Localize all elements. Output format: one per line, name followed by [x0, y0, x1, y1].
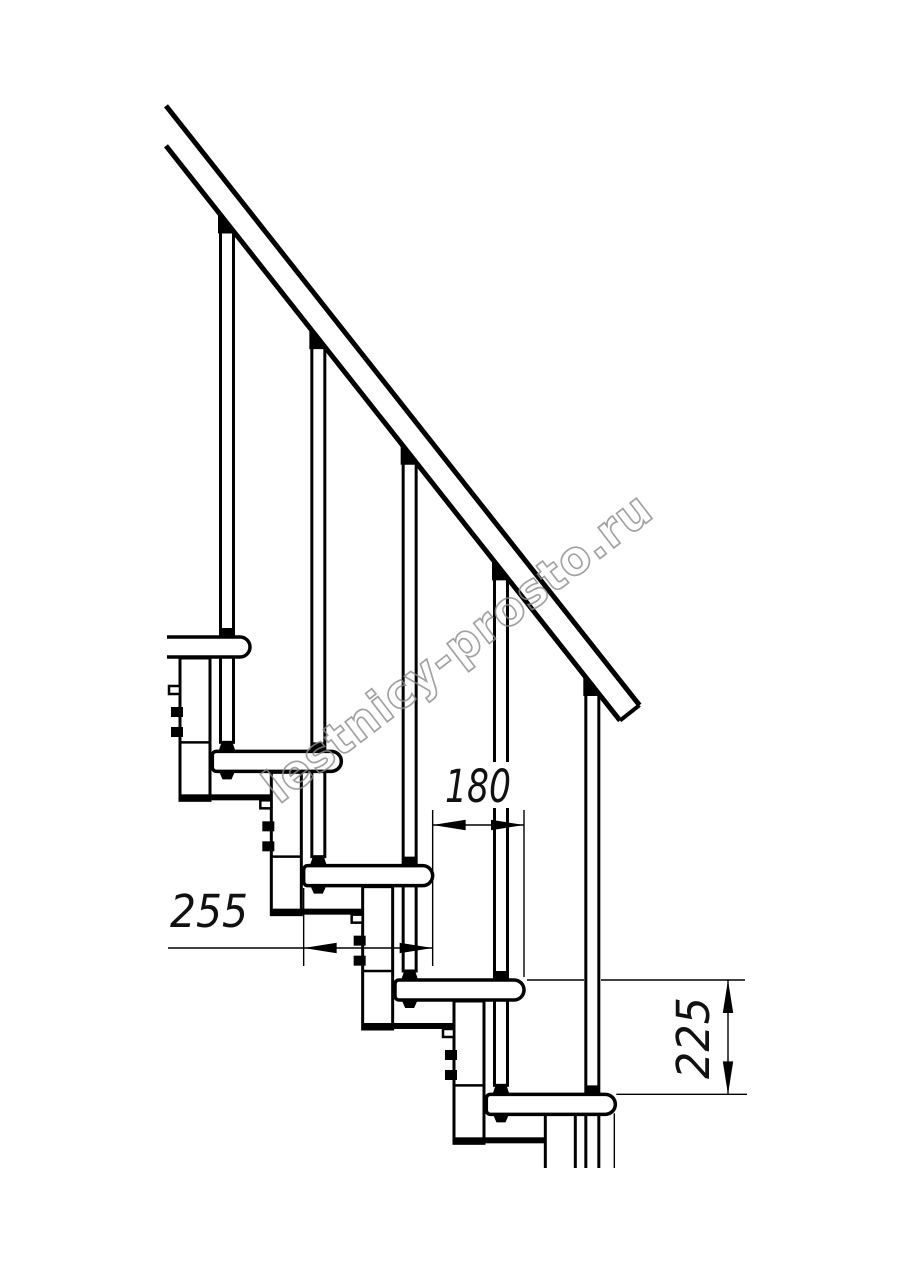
staircase-technical-drawing: 180 255 225 lestnicy-prosto.ru: [0, 0, 914, 1280]
baluster: [586, 689, 599, 1094]
bolt: [262, 821, 274, 831]
baluster: [312, 343, 325, 752]
tread: [486, 1094, 615, 1114]
bolt: [354, 936, 366, 946]
module-flange: [271, 909, 363, 915]
baluster: [221, 227, 234, 637]
arrowhead: [304, 943, 337, 953]
support-post: [403, 885, 416, 971]
arrowhead: [433, 820, 466, 830]
support-column: [180, 658, 210, 800]
drawing-canvas: 180 255 225 lestnicy-prosto.ru: [0, 0, 914, 1280]
tread: [167, 637, 250, 657]
support-post: [494, 999, 507, 1085]
tread: [395, 980, 524, 1000]
bolt: [445, 1070, 457, 1080]
dimension-rise-label: 225: [667, 997, 720, 1079]
module-flange: [454, 1137, 546, 1143]
support-column: [363, 887, 393, 1029]
bolt: [262, 841, 274, 851]
staircase-structure: [166, 106, 640, 1168]
arrowhead: [723, 980, 733, 1013]
side-tab: [169, 686, 180, 694]
dimension-tread-depth-label: 255: [170, 885, 248, 938]
bolt: [445, 1050, 457, 1060]
module-flange: [180, 794, 272, 800]
side-tab: [352, 915, 363, 923]
bolt: [354, 956, 366, 966]
support-post: [221, 656, 234, 742]
support-column: [454, 1001, 484, 1143]
dimension-going-label: 180: [445, 760, 511, 813]
bolt: [171, 707, 183, 717]
side-tab: [443, 1029, 454, 1037]
arrowhead: [723, 1061, 733, 1094]
module-flange: [363, 1023, 455, 1029]
side-tab: [260, 800, 271, 808]
tread: [304, 866, 433, 886]
bolt: [171, 727, 183, 737]
